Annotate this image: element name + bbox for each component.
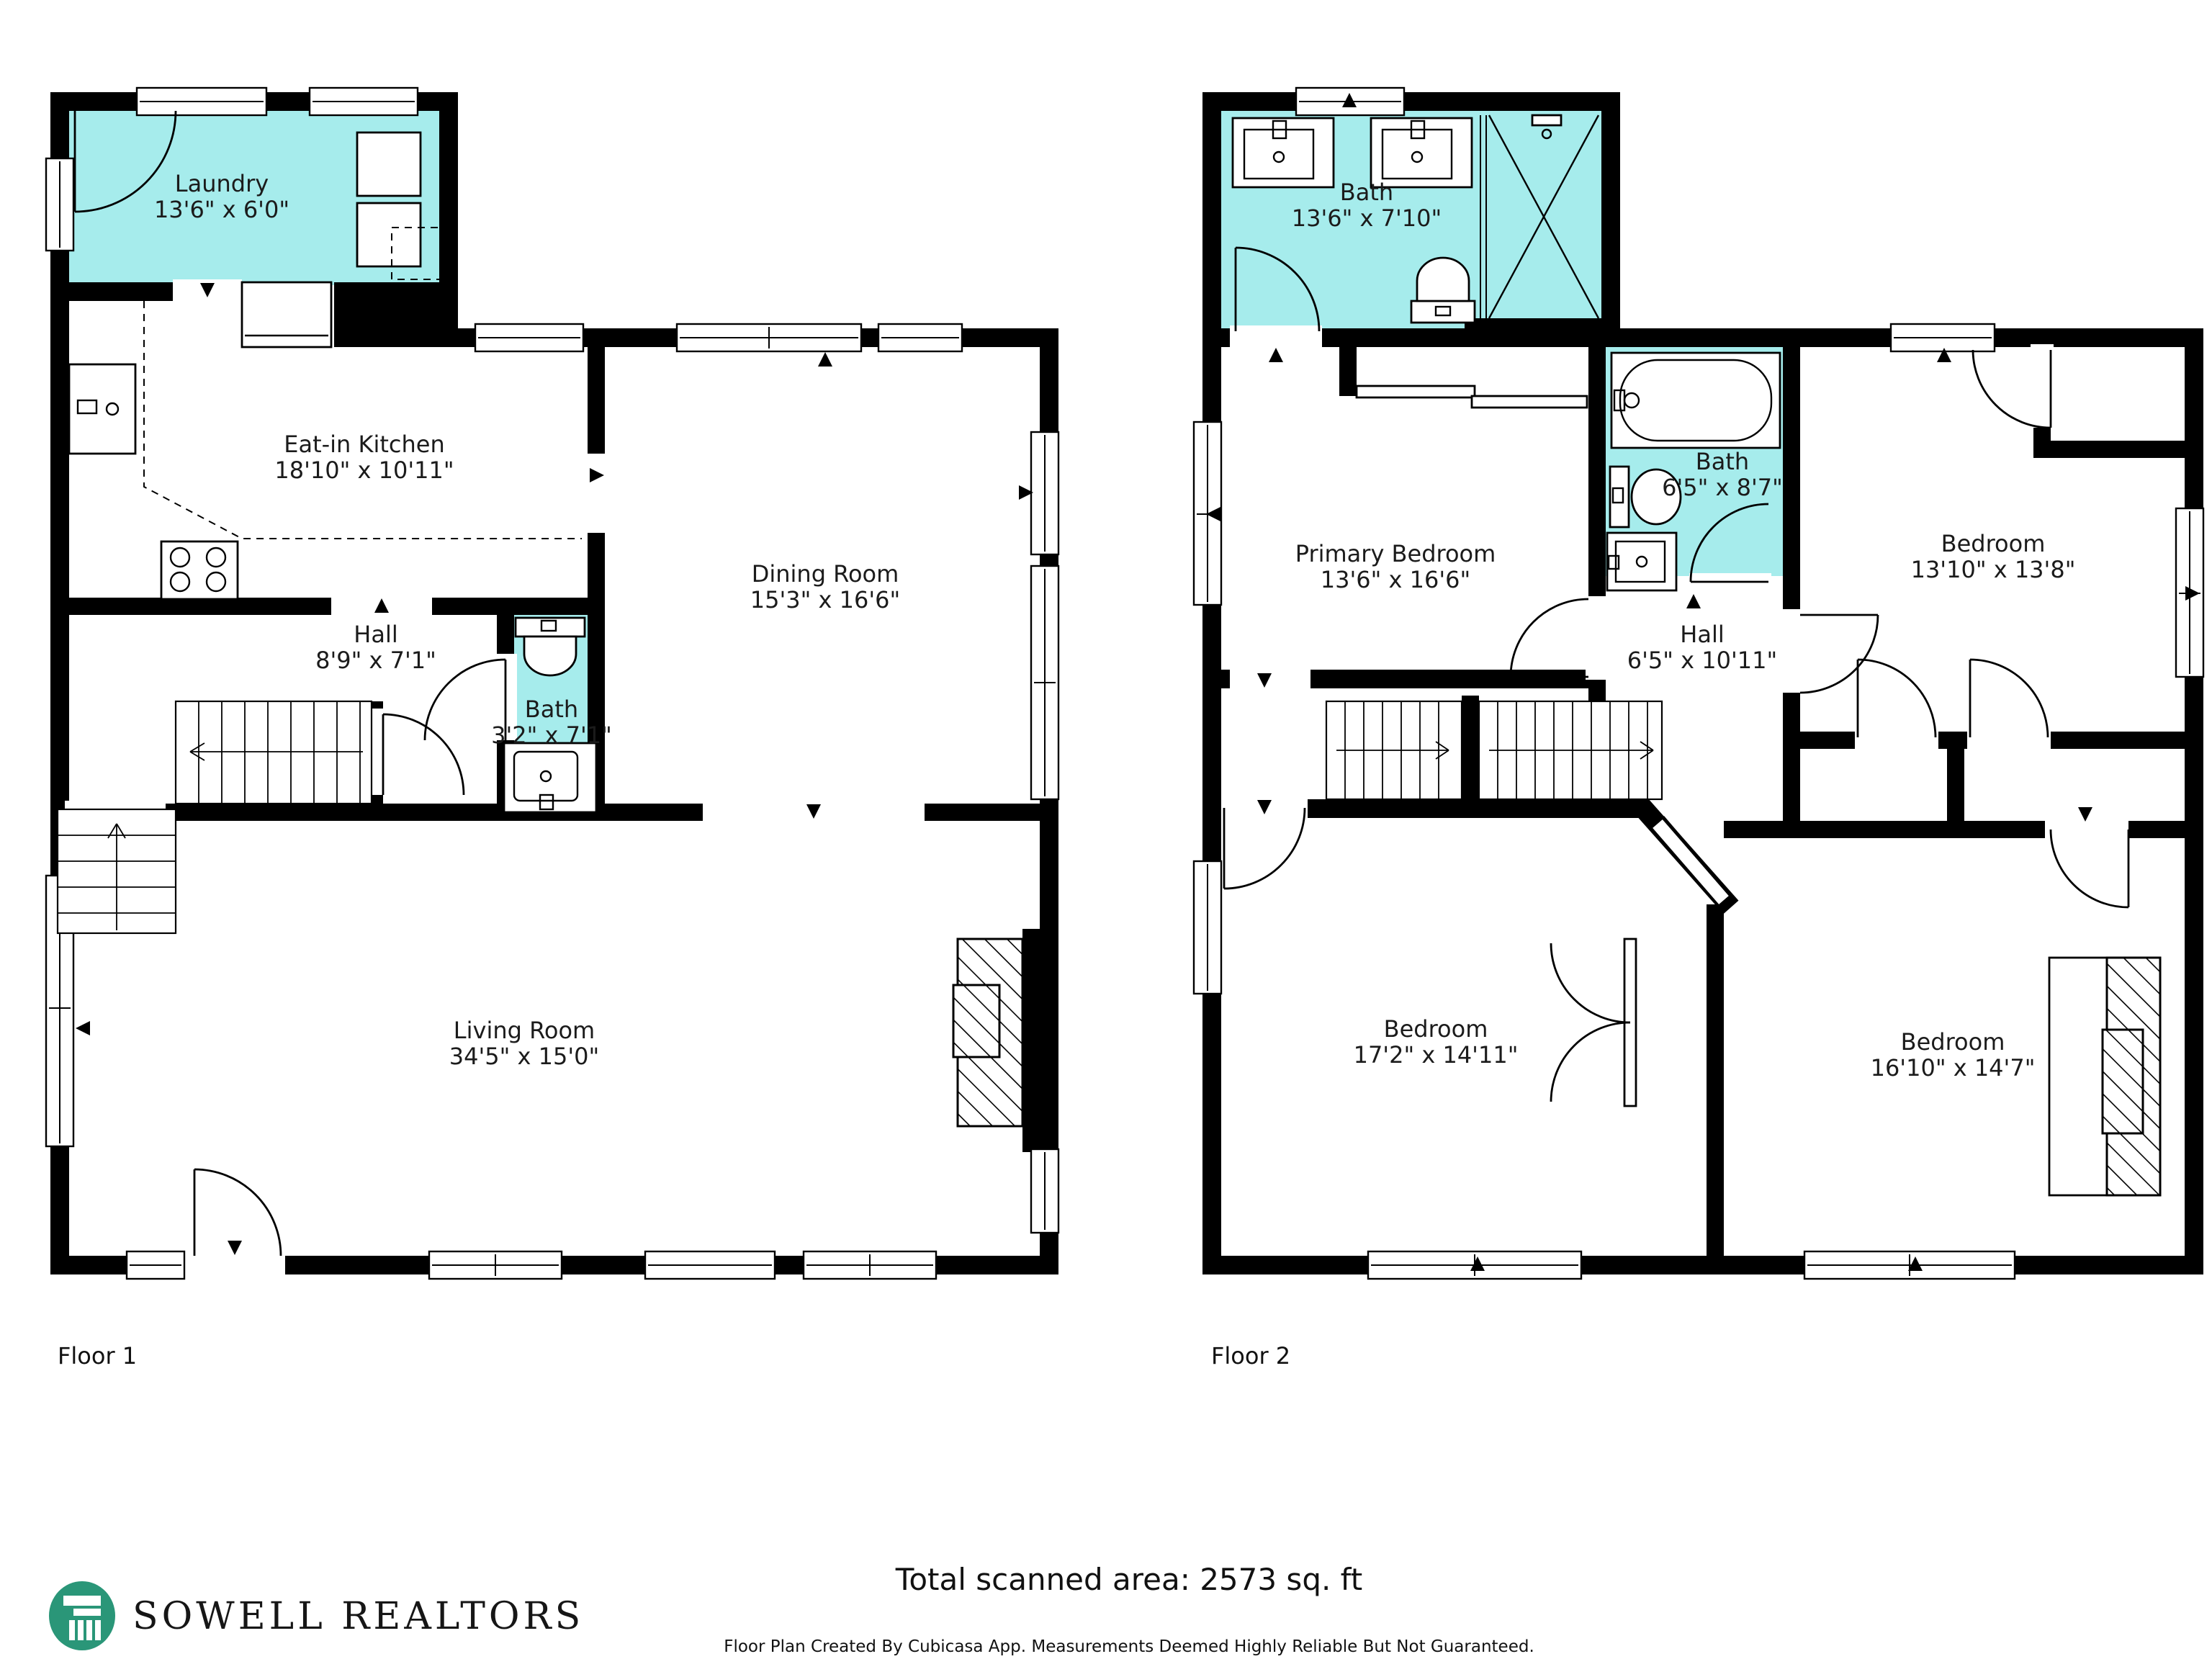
room-label-bath-main: Bath (1340, 179, 1393, 206)
floor2-stairs (1326, 701, 1662, 799)
room-dims-bath-small: 6'5" x 8'7" (1662, 474, 1783, 501)
room-label-bedroom-bl: Bedroom (1384, 1015, 1488, 1043)
door (1800, 615, 1878, 693)
floor1-label: Floor 1 (58, 1342, 137, 1370)
room-dims-bedroom-br: 16'10" x 14'7" (1871, 1054, 2036, 1082)
closet-double-door (1551, 939, 1636, 1106)
disclaimer-text: Floor Plan Created By Cubicasa App. Meas… (724, 1637, 1534, 1656)
staircase (58, 809, 176, 933)
room-label-bedroom-tr: Bedroom (1941, 530, 2046, 557)
room-label-living: Living Room (454, 1017, 595, 1044)
room-dims-hall1: 8'9" x 7'1" (315, 647, 436, 674)
window (1194, 861, 1221, 994)
room-label-dining: Dining Room (752, 560, 899, 588)
window (429, 1251, 562, 1279)
bathroom-sink (1233, 118, 1334, 187)
room-dims-bedroom-tr: 13'10" x 13'8" (1911, 556, 2076, 583)
window (1031, 566, 1058, 799)
room-label-hall2: Hall (1680, 621, 1724, 648)
floorplan-canvas: Laundry 13'6" x 6'0" Eat-in Kitchen 18'1… (0, 0, 2212, 1659)
window (46, 158, 73, 251)
room-dims-laundry: 13'6" x 6'0" (154, 196, 289, 223)
window (137, 88, 266, 115)
room-dims-living: 34'5" x 15'0" (449, 1043, 599, 1070)
room-dims-bath-main: 13'6" x 7'10" (1292, 204, 1442, 232)
room-label-primary: Primary Bedroom (1295, 540, 1496, 567)
window (1031, 432, 1058, 554)
window (1031, 1149, 1058, 1233)
footer: Floor 1 Floor 2 Total scanned area: 2573… (49, 1342, 1534, 1656)
floor2-label: Floor 2 (1211, 1342, 1290, 1370)
door (1970, 660, 2048, 737)
room-label-bath-small: Bath (1696, 448, 1749, 475)
room-dims-bedroom-bl: 17'2" x 14'11" (1354, 1041, 1519, 1069)
kitchen-sink (69, 364, 135, 454)
door (383, 714, 464, 795)
window (1891, 324, 1995, 351)
dryer (357, 203, 421, 266)
room-dims-kitchen: 18'10" x 10'11" (274, 457, 454, 484)
closet-sliding-door (1357, 386, 1587, 408)
window (310, 88, 418, 115)
brand-logo: SOWELL REALTORS (49, 1581, 584, 1650)
window (645, 1251, 775, 1279)
door (1858, 660, 1935, 737)
staircase (176, 701, 372, 804)
room-dims-hall2: 6'5" x 10'11" (1627, 647, 1777, 674)
floor1-plan: Laundry 13'6" x 6'0" Eat-in Kitchen 18'1… (46, 88, 1058, 1279)
room-label-bath1: Bath (525, 696, 578, 723)
window (475, 324, 583, 351)
bathroom-sink (1371, 118, 1472, 187)
window (127, 1251, 184, 1279)
floor2-plan: Bath 13'6" x 7'10" Primary Bedroom 13'6"… (1194, 88, 2203, 1279)
bathtub (1611, 353, 1780, 448)
room-label-kitchen: Eat-in Kitchen (284, 431, 445, 458)
toilet (1411, 258, 1475, 323)
brand-name: SOWELL REALTORS (132, 1595, 584, 1638)
room-label-laundry: Laundry (175, 170, 269, 197)
stove (161, 541, 238, 599)
room-dims-bath1: 3'2" x 7'1" (491, 721, 612, 749)
bathroom-sink (504, 743, 596, 812)
staircase (1479, 701, 1662, 799)
bathroom-sink (1607, 533, 1676, 590)
room-dims-dining: 15'3" x 16'6" (750, 586, 900, 613)
fireplace (953, 939, 1022, 1126)
window (878, 324, 962, 351)
room-label-bedroom-br: Bedroom (1901, 1028, 2005, 1056)
total-area-text: Total scanned area: 2573 sq. ft (895, 1562, 1362, 1597)
window (804, 1251, 936, 1279)
door (1511, 599, 1588, 677)
room-label-hall1: Hall (354, 621, 397, 648)
room-dims-primary: 13'6" x 16'6" (1321, 566, 1470, 593)
washer (357, 132, 421, 196)
refrigerator (242, 282, 331, 347)
door (2051, 829, 2128, 907)
staircase (1326, 701, 1462, 799)
fireplace (2049, 958, 2160, 1195)
window (677, 324, 861, 351)
window (1804, 1251, 2015, 1279)
